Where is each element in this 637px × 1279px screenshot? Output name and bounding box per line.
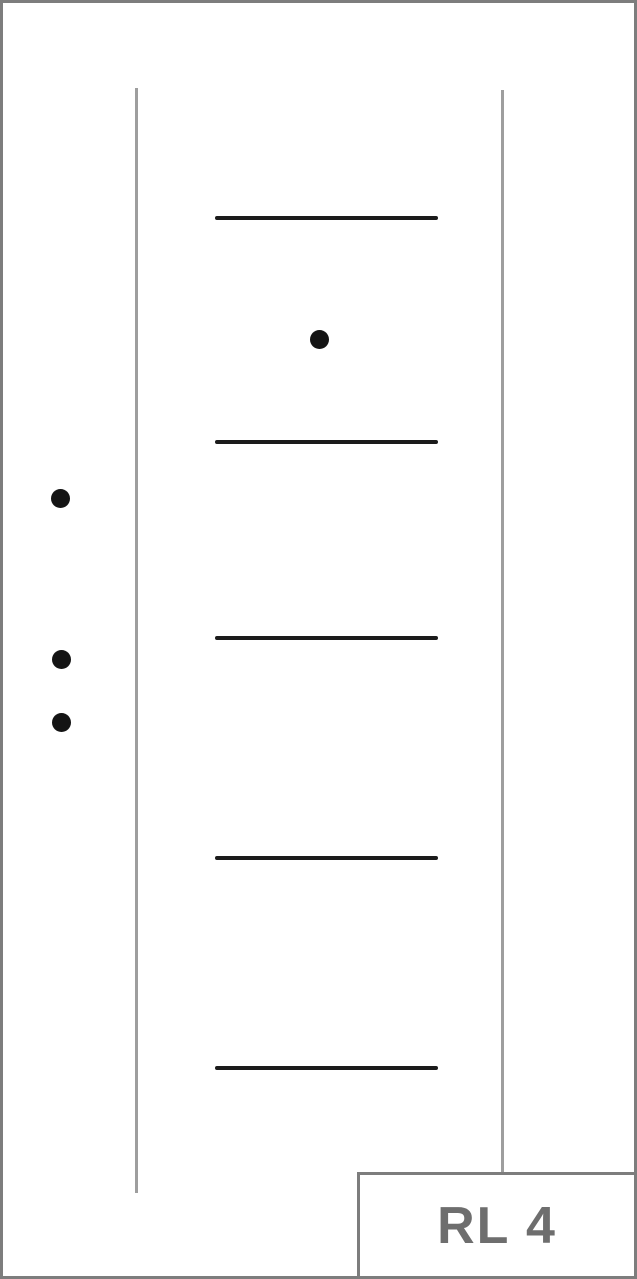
panel-groove-line xyxy=(215,216,438,220)
panel-groove-line xyxy=(215,1066,438,1070)
marker-dot xyxy=(51,489,70,508)
design-label-box: RL 4 xyxy=(357,1172,634,1276)
panel-groove-line xyxy=(215,440,438,444)
vertical-guide-line xyxy=(501,90,504,1172)
door-design-diagram[interactable]: RL 4 xyxy=(0,0,637,1279)
panel-groove-line xyxy=(215,636,438,640)
panel-groove-line xyxy=(215,856,438,860)
vertical-guide-line xyxy=(135,88,138,1193)
marker-dot xyxy=(52,650,71,669)
marker-dot xyxy=(52,713,71,732)
marker-dot xyxy=(310,330,329,349)
design-label: RL 4 xyxy=(437,1196,557,1256)
